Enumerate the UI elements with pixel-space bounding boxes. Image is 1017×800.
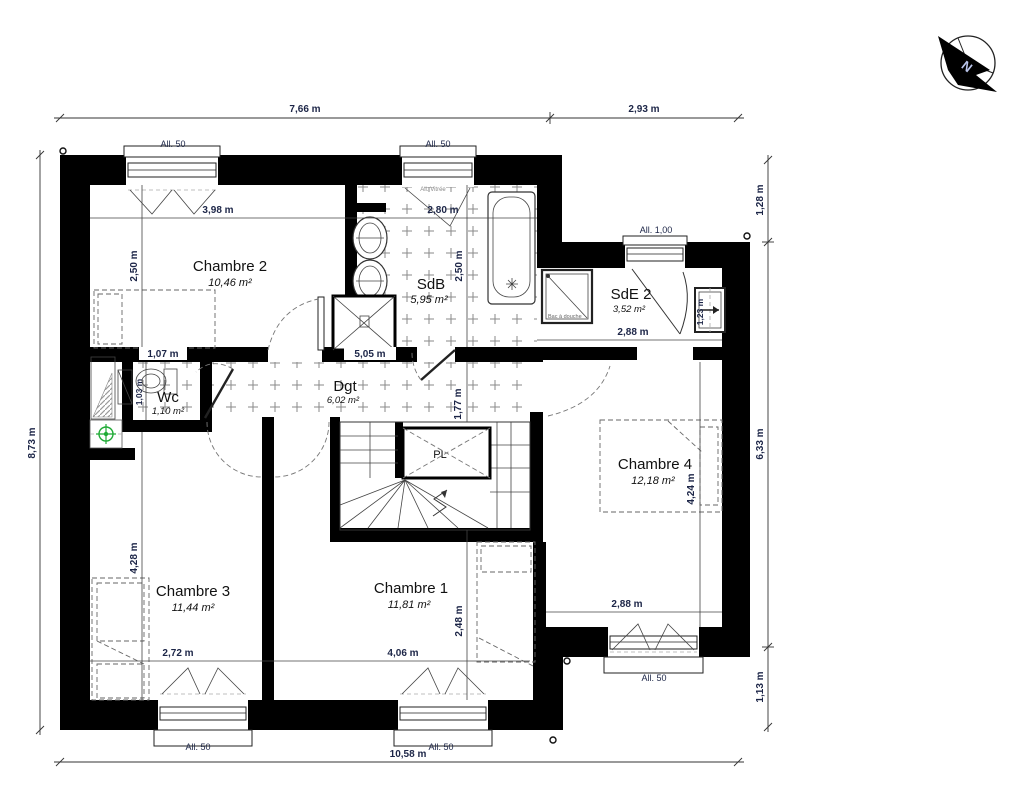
bed-chambre1	[477, 542, 535, 666]
dim-ch1-width: 4,06 m	[387, 648, 418, 659]
room-area-dgt: 6,02 m²	[327, 395, 360, 406]
corridor-floor-tiles	[212, 362, 530, 420]
window-label-w5: All. 50	[185, 742, 210, 752]
shower-sdb-icon	[333, 296, 395, 350]
dim-sde2-width: 2,88 m	[617, 327, 648, 338]
window-chambre2	[124, 146, 220, 214]
dim-right-mid: 6,33 m	[755, 428, 766, 459]
staircase: PL	[340, 422, 530, 530]
dim-corridor-right: 5,05 m	[354, 349, 385, 360]
window-label-w3: All. 1,00	[640, 225, 673, 235]
dim-radiator: 1,23 m	[695, 298, 705, 325]
room-label-chambre1: Chambre 1	[374, 580, 448, 597]
dim-ch2-depth: 2,50 m	[129, 250, 140, 281]
dim-top-left: 7,66 m	[289, 104, 320, 115]
dim-sdb-width: 2,80 m	[427, 205, 458, 216]
dim-left: 8,73 m	[27, 427, 38, 458]
dim-right-top: 1,28 m	[755, 184, 766, 215]
room-area-wc: 1,10 m²	[152, 406, 185, 417]
window-label-w6: All. 50	[428, 742, 453, 752]
wardrobe-chambre3	[92, 578, 149, 700]
room-area-chambre2: 10,46 m²	[208, 277, 252, 289]
window-label-w2: All. 50	[425, 139, 450, 149]
room-label-sdb: SdB	[417, 276, 445, 293]
room-area-sdb: 5,95 m²	[410, 294, 448, 306]
dim-sdb-depth: 2,50 m	[454, 250, 465, 281]
room-label-dgt: Dgt	[333, 378, 357, 395]
dim-bottom: 10,58 m	[390, 749, 427, 760]
window-chambre3	[154, 668, 252, 746]
dim-wc-depth: 1,03 m	[134, 378, 144, 405]
dim-right-bottom: 1,13 m	[755, 671, 766, 702]
bed-chambre2	[94, 290, 215, 348]
dim-dgt-depth: 1,77 m	[453, 388, 464, 419]
dim-corridor-left: 1,07 m	[147, 349, 178, 360]
room-area-chambre4: 12,18 m²	[631, 475, 675, 487]
dim-ch4-width: 2,88 m	[611, 599, 642, 610]
dim-ch4-depth: 4,24 m	[686, 473, 697, 504]
room-label-chambre4: Chambre 4	[618, 456, 692, 473]
room-label-chambre3: Chambre 3	[156, 583, 230, 600]
shower-tray-label: Bac à douche	[548, 314, 582, 320]
dim-ch2-width: 3,98 m	[202, 205, 233, 216]
window-chambre4	[604, 624, 703, 673]
room-area-chambre3: 11,44 m²	[172, 602, 215, 614]
dim-top-right: 2,93 m	[628, 104, 659, 115]
room-label-wc: Wc	[157, 389, 179, 406]
floor-plan-page: PL	[0, 0, 1017, 800]
window-label-w1: All. 50	[160, 139, 185, 149]
room-label-sde2: SdE 2	[611, 286, 652, 303]
vent-symbol-icon	[90, 420, 122, 448]
dim-ch3-width: 2,72 m	[162, 648, 193, 659]
window-label-w4: All. 50	[641, 673, 666, 683]
floor-plan-canvas: PL	[0, 0, 1017, 800]
window-label-glazed: All. Vitrée	[420, 187, 446, 193]
room-area-chambre1: 11,81 m²	[388, 599, 431, 611]
shower-tray-sde2-icon: Bac à douche	[542, 270, 592, 323]
dim-ch1-depth: 2,48 m	[454, 605, 465, 636]
bathtub-icon	[488, 192, 535, 304]
door-leaf-chambre2	[318, 297, 324, 350]
closet-pl-label: PL	[433, 449, 446, 461]
window-sde2	[623, 236, 687, 271]
room-area-sde2: 3,52 m²	[613, 304, 646, 315]
room-label-chambre2: Chambre 2	[193, 258, 267, 275]
compass-north-icon: N	[938, 36, 997, 92]
window-chambre1	[394, 668, 492, 746]
dim-ch3-depth: 4,28 m	[129, 542, 140, 573]
